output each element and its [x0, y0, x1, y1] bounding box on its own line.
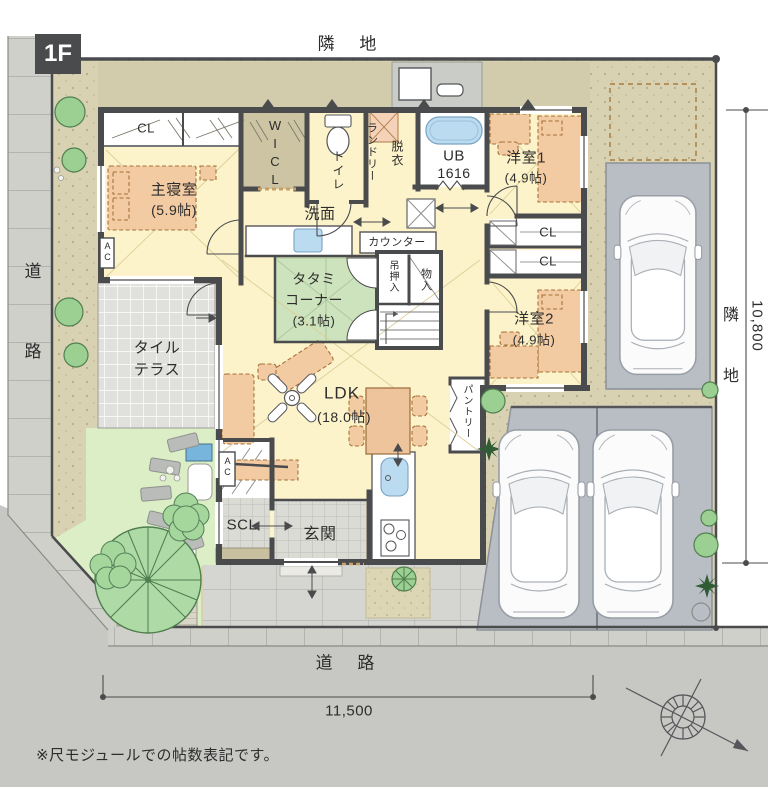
bush-star-icon	[695, 574, 719, 598]
approach-tiles	[203, 565, 487, 627]
stove-icon	[381, 520, 409, 556]
floor-plan-page: 1F 隣 地 道 路 隣 地 10,800 道 路 11,500 ※尺モジュール…	[0, 0, 768, 787]
road-label-bottom: 道 路	[316, 655, 385, 672]
label-west2-size: (4.9帖)	[513, 334, 556, 347]
water-heater	[392, 62, 482, 108]
toilet-icon	[325, 115, 351, 155]
label-west2: 洋室2	[514, 312, 554, 327]
label-wicl: WICL	[269, 118, 282, 190]
kitchen-sink	[381, 458, 408, 496]
label-genkan: 玄関	[303, 527, 336, 543]
boundary-label-right: 隣 地	[720, 306, 736, 397]
label-senmen: 洗面	[304, 207, 335, 222]
label-tatami-2: コーナー	[285, 293, 343, 307]
label-ac-ldk: AC	[223, 456, 232, 478]
master-closet	[104, 113, 240, 147]
label-closet1: CL	[539, 226, 557, 239]
label-tatami-1: タタミ	[292, 272, 336, 286]
label-tsuri-oshiire: 吊押入	[387, 260, 397, 293]
label-scl: SCL	[227, 518, 258, 533]
label-pantry: パントリー	[461, 384, 471, 439]
label-terrace-2: テラス	[134, 363, 180, 378]
label-laundry: ランドリー	[366, 122, 377, 182]
bathtub-icon	[426, 117, 482, 144]
west1-desk	[490, 114, 530, 144]
west2-desk	[490, 346, 538, 378]
label-closet2: CL	[539, 255, 557, 268]
car-parked-right	[587, 430, 679, 618]
basin-sink	[294, 229, 322, 252]
label-master-size: (5.9帖)	[151, 203, 197, 217]
bush-star-icon	[477, 437, 501, 461]
dining-table	[366, 388, 410, 454]
label-ub: UB	[443, 149, 465, 164]
label-counter: カウンター	[368, 238, 426, 249]
label-terrace-1: タイル	[134, 341, 181, 356]
floor-badge: 1F	[35, 34, 81, 74]
label-toilet: トイレ	[332, 150, 344, 192]
label-ac-master: AC	[103, 241, 112, 263]
dimension-depth: 10,800	[750, 300, 765, 352]
car-parked-left	[493, 430, 585, 618]
label-ldk: LDK	[324, 385, 360, 402]
label-master-bedroom: 主寝室	[151, 183, 198, 198]
sofa	[222, 374, 254, 444]
label-west1-size: (4.9帖)	[505, 172, 548, 185]
module-note: ※尺モジュールでの帖数表記です。	[36, 748, 279, 763]
eave-band	[98, 62, 590, 108]
label-west1: 洋室1	[506, 151, 546, 166]
label-mono-ire: 物入	[420, 268, 431, 292]
label-tatami-size: (3.1帖)	[293, 315, 336, 328]
road-label-left: 道 路	[23, 262, 40, 381]
label-datsui: 脱衣	[391, 140, 403, 168]
dimension-width: 11,500	[325, 704, 373, 719]
hall-cabinet	[407, 199, 435, 228]
label-ub-size: 1616	[437, 166, 470, 180]
car-parked-north	[614, 196, 701, 375]
label-ldk-size: (18.0帖)	[317, 410, 371, 424]
label-master-closet: CL	[137, 122, 155, 135]
boundary-label-top: 隣 地	[318, 36, 387, 53]
kitchen-counter	[372, 452, 415, 562]
